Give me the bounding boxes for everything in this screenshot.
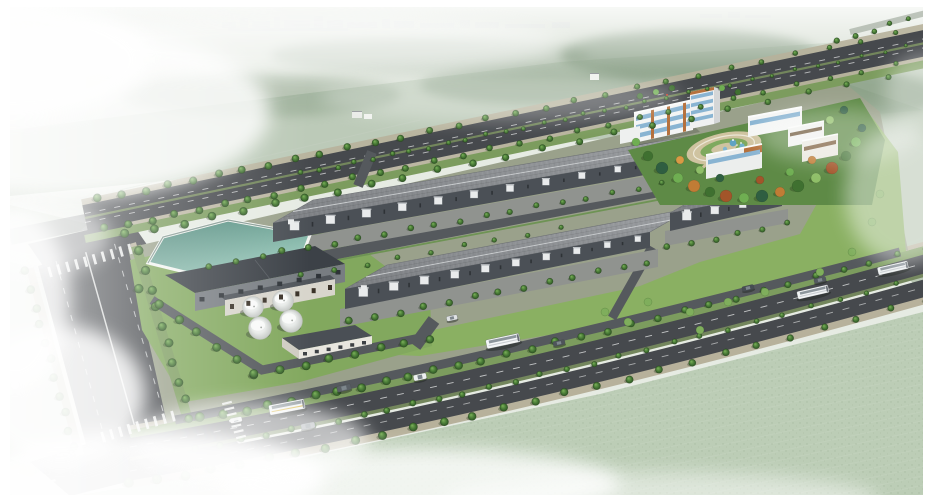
tree xyxy=(426,127,433,134)
tree xyxy=(472,292,479,299)
tree xyxy=(395,255,400,260)
tree xyxy=(649,122,656,129)
tree xyxy=(521,126,526,131)
tree xyxy=(644,260,650,266)
garden-tree xyxy=(632,138,640,146)
tree xyxy=(372,139,379,146)
loading-door xyxy=(543,254,550,260)
tree xyxy=(705,87,709,91)
tree xyxy=(525,233,530,238)
tree xyxy=(731,95,736,100)
tree xyxy=(574,127,580,133)
tree xyxy=(456,123,463,130)
window xyxy=(327,348,331,352)
tree xyxy=(440,418,448,426)
tree xyxy=(705,301,712,308)
tree xyxy=(578,333,586,341)
wall-recess xyxy=(635,166,637,169)
wall-recess xyxy=(500,265,502,269)
tree xyxy=(821,324,828,331)
scene-rendering: Industrial park aerial rendering xyxy=(0,0,935,501)
tree xyxy=(547,136,553,142)
tree xyxy=(377,343,385,351)
wall-recess xyxy=(622,242,624,245)
tree xyxy=(469,160,476,167)
window xyxy=(315,350,319,354)
tree xyxy=(533,202,539,208)
tree xyxy=(399,174,407,182)
tree xyxy=(459,392,465,398)
tree xyxy=(349,173,356,180)
lawn-bush xyxy=(761,288,769,296)
tree xyxy=(785,281,792,288)
loading-door xyxy=(326,216,335,224)
tree xyxy=(827,45,832,50)
tree xyxy=(426,335,434,343)
tree xyxy=(858,39,863,44)
loading-door xyxy=(398,204,406,211)
tree xyxy=(836,61,840,65)
garden-tree xyxy=(719,85,725,91)
wall-recess xyxy=(700,212,702,216)
tree xyxy=(688,116,694,122)
tree xyxy=(672,339,678,345)
window xyxy=(328,285,332,290)
tree xyxy=(404,373,412,381)
loading-door xyxy=(481,265,489,272)
garden-tree xyxy=(775,187,785,197)
farm-building xyxy=(364,114,372,119)
tree xyxy=(420,303,427,310)
tree xyxy=(529,345,537,353)
tree xyxy=(637,114,643,120)
lawn-bush xyxy=(724,298,732,306)
tree xyxy=(583,196,589,202)
tree xyxy=(371,157,376,162)
loading-door xyxy=(542,179,549,185)
lawn-bush xyxy=(601,308,609,316)
tree xyxy=(809,303,814,308)
tree xyxy=(841,266,847,272)
tree xyxy=(365,263,370,268)
tree xyxy=(516,140,522,146)
tree xyxy=(611,129,618,136)
tree xyxy=(576,138,583,145)
tree xyxy=(844,81,850,87)
tree xyxy=(713,237,719,243)
tree xyxy=(513,379,519,385)
tree xyxy=(655,366,663,374)
wall-recess xyxy=(469,271,471,275)
tree xyxy=(368,180,376,188)
garden-tree xyxy=(696,166,704,174)
wall-recess xyxy=(312,222,314,227)
lawn-bush xyxy=(696,326,704,334)
tree xyxy=(502,154,509,161)
tree xyxy=(351,159,356,164)
tree xyxy=(644,348,650,354)
garden-tree xyxy=(656,162,668,174)
tree xyxy=(887,21,892,26)
wall-recess xyxy=(439,277,441,281)
tree xyxy=(754,318,759,323)
tree xyxy=(753,342,760,349)
garden-tree xyxy=(705,187,715,197)
tree xyxy=(468,412,476,420)
tree xyxy=(334,189,342,197)
loading-door xyxy=(470,191,478,198)
garden-tree xyxy=(720,190,732,202)
tree xyxy=(560,199,566,205)
tree xyxy=(696,73,702,79)
tree xyxy=(390,151,395,156)
tree xyxy=(507,209,513,215)
architectural-rendering-stage: Industrial park aerial rendering xyxy=(0,0,935,501)
tree xyxy=(477,357,485,365)
frame-right xyxy=(923,0,935,501)
wall-recess xyxy=(348,216,350,220)
tree xyxy=(410,400,416,406)
loading-door xyxy=(420,277,429,285)
tree xyxy=(560,388,568,396)
tree xyxy=(429,365,437,373)
loading-door xyxy=(512,260,519,267)
loading-door xyxy=(635,236,641,241)
tree xyxy=(406,149,411,154)
frame-left xyxy=(0,0,10,501)
tree xyxy=(382,376,391,385)
tree xyxy=(457,219,463,225)
wall-recess xyxy=(491,191,493,195)
lawn-bush xyxy=(686,308,694,316)
tree xyxy=(539,144,546,151)
tree xyxy=(784,220,790,226)
garden-tree xyxy=(756,190,768,202)
tree xyxy=(626,376,634,384)
tree xyxy=(397,135,404,142)
tree xyxy=(593,382,601,390)
tree xyxy=(688,240,694,246)
wall-recess xyxy=(378,289,380,294)
tree xyxy=(483,132,488,137)
wall-recess xyxy=(408,283,410,287)
tree xyxy=(426,146,431,151)
tree xyxy=(569,275,575,281)
fountain-spray xyxy=(732,139,734,141)
wall-recess xyxy=(728,207,730,211)
tree xyxy=(816,64,820,68)
lawn-bush xyxy=(644,298,652,306)
lawn-bush xyxy=(624,318,632,326)
tree xyxy=(494,289,501,296)
tree xyxy=(381,231,387,237)
tree xyxy=(834,38,840,44)
tree xyxy=(794,81,799,86)
garden-tree xyxy=(643,151,653,161)
fog-patch xyxy=(130,402,370,482)
loading-door xyxy=(451,271,459,278)
tree xyxy=(460,153,466,159)
tree xyxy=(859,70,864,75)
tree xyxy=(564,366,570,372)
loading-door xyxy=(434,197,442,204)
tree xyxy=(770,74,774,78)
tree xyxy=(595,267,601,273)
tree xyxy=(547,278,554,285)
garden-tree xyxy=(811,173,821,183)
tree xyxy=(537,371,543,377)
tree xyxy=(864,291,869,296)
tree xyxy=(332,241,339,248)
tree xyxy=(446,299,453,306)
window xyxy=(312,288,316,293)
gable-door xyxy=(684,209,690,214)
frame-bottom xyxy=(0,495,935,501)
tree xyxy=(351,350,359,358)
tree xyxy=(409,423,418,432)
tree xyxy=(500,403,508,411)
tree xyxy=(728,84,732,88)
loading-door xyxy=(604,242,610,248)
tree xyxy=(484,212,490,218)
loading-door xyxy=(573,248,580,254)
tree xyxy=(462,242,467,247)
gable-door xyxy=(361,285,367,290)
tree xyxy=(345,317,353,325)
garden-tree xyxy=(676,156,684,164)
garden-tree xyxy=(756,176,764,184)
tree xyxy=(759,59,764,64)
tree xyxy=(559,225,564,230)
window xyxy=(338,345,342,349)
garden-tree xyxy=(716,174,724,182)
tree xyxy=(400,339,408,347)
tree xyxy=(317,167,322,172)
tree xyxy=(894,281,899,286)
tree xyxy=(486,384,492,390)
tree xyxy=(325,354,333,362)
garden-tree xyxy=(688,180,700,192)
tree xyxy=(760,227,766,233)
tree xyxy=(666,109,672,115)
lawn-bush xyxy=(848,248,856,256)
tree xyxy=(621,264,627,270)
fog-patch xyxy=(320,72,680,122)
tree xyxy=(436,396,442,402)
tree xyxy=(377,169,384,176)
tree xyxy=(502,350,510,358)
tree xyxy=(336,165,341,170)
tree xyxy=(446,140,451,145)
tower-side xyxy=(714,87,720,124)
tree xyxy=(371,313,378,320)
wall-recess xyxy=(591,248,593,251)
loading-door xyxy=(579,173,586,179)
wall-recess xyxy=(561,254,563,258)
tree xyxy=(751,77,755,81)
tree xyxy=(893,30,898,35)
wall-recess xyxy=(384,210,386,214)
tree xyxy=(765,99,771,105)
tree xyxy=(698,104,704,110)
farm-building xyxy=(352,112,362,118)
tree xyxy=(431,222,437,228)
loading-door xyxy=(362,210,371,218)
tree xyxy=(722,349,729,356)
loading-door xyxy=(389,283,398,291)
tree xyxy=(521,285,528,292)
tree xyxy=(455,361,463,369)
tree xyxy=(428,250,433,255)
tree xyxy=(664,243,670,249)
tree xyxy=(532,397,540,405)
tree xyxy=(853,33,859,39)
loading-door xyxy=(506,185,513,191)
tree xyxy=(312,390,321,399)
tree xyxy=(904,44,907,47)
tree xyxy=(787,335,794,342)
tree xyxy=(321,181,328,188)
fountain-spray xyxy=(736,144,738,146)
tree xyxy=(760,90,765,95)
tree xyxy=(408,225,414,231)
tree xyxy=(687,90,691,94)
tree xyxy=(779,313,784,318)
loading-door xyxy=(711,207,719,214)
tree xyxy=(361,411,368,418)
tree xyxy=(616,353,622,359)
tree xyxy=(332,267,338,273)
window xyxy=(350,343,354,347)
tree xyxy=(384,407,390,413)
accent-column xyxy=(683,101,686,132)
door-canopy xyxy=(634,236,641,237)
tree xyxy=(793,67,797,71)
tree xyxy=(853,316,860,323)
garden-tree xyxy=(786,168,794,176)
frame-top xyxy=(0,0,935,7)
tree xyxy=(793,50,798,55)
wall-recess xyxy=(599,172,601,175)
tree xyxy=(402,165,409,172)
tree xyxy=(689,359,696,366)
garden-tree xyxy=(739,193,749,203)
tree xyxy=(378,431,387,440)
tree xyxy=(860,54,864,58)
tree xyxy=(866,260,872,266)
tree xyxy=(725,328,730,333)
wall-recess xyxy=(455,197,457,201)
tree xyxy=(872,29,877,34)
window xyxy=(316,274,321,279)
tree xyxy=(397,310,404,317)
tree xyxy=(492,238,497,243)
tree xyxy=(735,230,741,236)
tree xyxy=(357,384,366,393)
wall-recess xyxy=(419,203,421,207)
tree xyxy=(463,138,468,143)
wall-recess xyxy=(563,178,565,181)
garden-tree xyxy=(735,89,741,95)
tree xyxy=(663,79,669,85)
tree xyxy=(806,88,812,94)
tree xyxy=(659,180,664,185)
tree xyxy=(828,76,833,81)
tree xyxy=(636,187,641,192)
garden-tree xyxy=(673,173,683,183)
tree xyxy=(654,315,661,322)
tree xyxy=(344,143,351,150)
tree xyxy=(504,129,509,134)
tree xyxy=(729,65,735,71)
window xyxy=(362,341,366,345)
tree xyxy=(725,106,731,112)
tree xyxy=(838,297,843,302)
tree xyxy=(434,165,441,172)
fountain-spray xyxy=(740,142,742,144)
tree xyxy=(431,157,438,164)
tree xyxy=(591,361,597,367)
lawn-bush xyxy=(816,268,824,276)
tree xyxy=(610,190,615,195)
tree xyxy=(355,234,361,240)
tree xyxy=(888,305,895,312)
wall-recess xyxy=(530,259,532,263)
tree xyxy=(316,151,323,158)
wall-recess xyxy=(527,185,529,189)
garden-tree xyxy=(792,180,804,192)
tree xyxy=(906,16,911,21)
tree xyxy=(605,123,611,129)
tree xyxy=(604,328,611,335)
tree xyxy=(884,51,888,55)
tree xyxy=(733,296,740,303)
loading-door xyxy=(615,167,621,173)
tree xyxy=(486,145,492,151)
